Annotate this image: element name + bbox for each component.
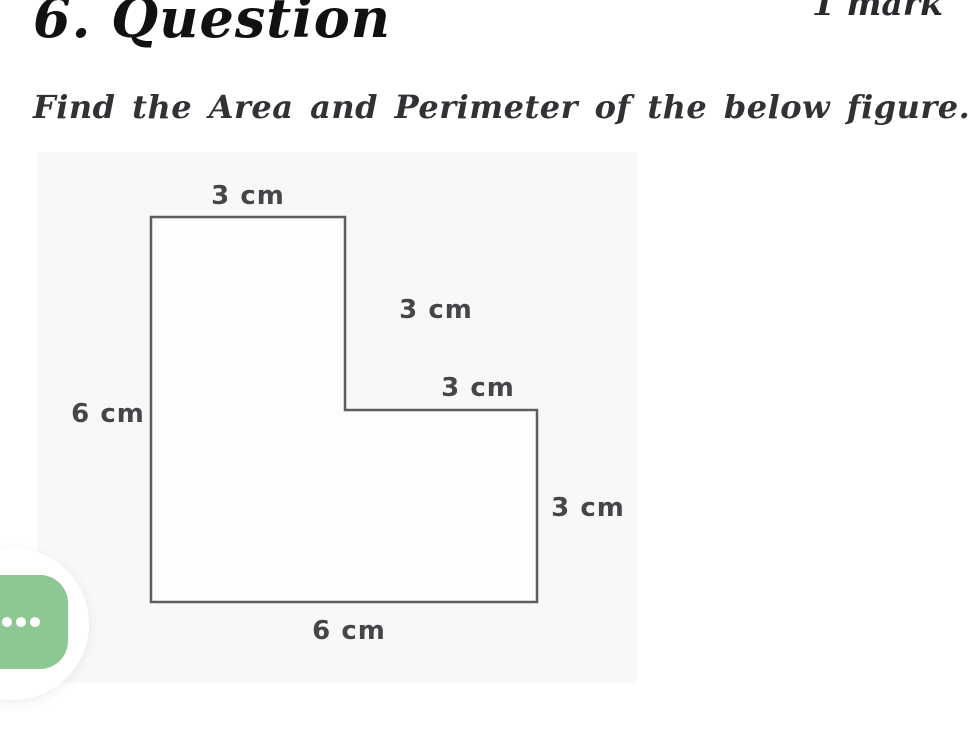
figure-image-panel: 3 cm 3 cm 3 cm 6 cm 3 cm 6 cm xyxy=(37,152,637,683)
dimension-label-upper-right-side: 3 cm xyxy=(399,295,473,325)
dimension-label-left-side: 6 cm xyxy=(71,399,145,429)
question-prompt: Find the Area and Perimeter of the below… xyxy=(33,88,943,126)
dimension-label-middle-step: 3 cm xyxy=(441,373,515,403)
dimension-label-bottom: 6 cm xyxy=(312,616,386,646)
l-shape-outline xyxy=(151,217,537,602)
ellipsis-icon xyxy=(2,617,40,627)
dimension-label-top: 3 cm xyxy=(211,181,285,211)
dimension-label-lower-right-side: 3 cm xyxy=(551,493,625,523)
question-page: 6. Question 1 mark Find the Area and Per… xyxy=(0,0,972,729)
more-options-button[interactable] xyxy=(0,575,68,669)
marks-label: 1 mark xyxy=(812,0,943,23)
question-number-heading: 6. Question xyxy=(33,0,391,50)
